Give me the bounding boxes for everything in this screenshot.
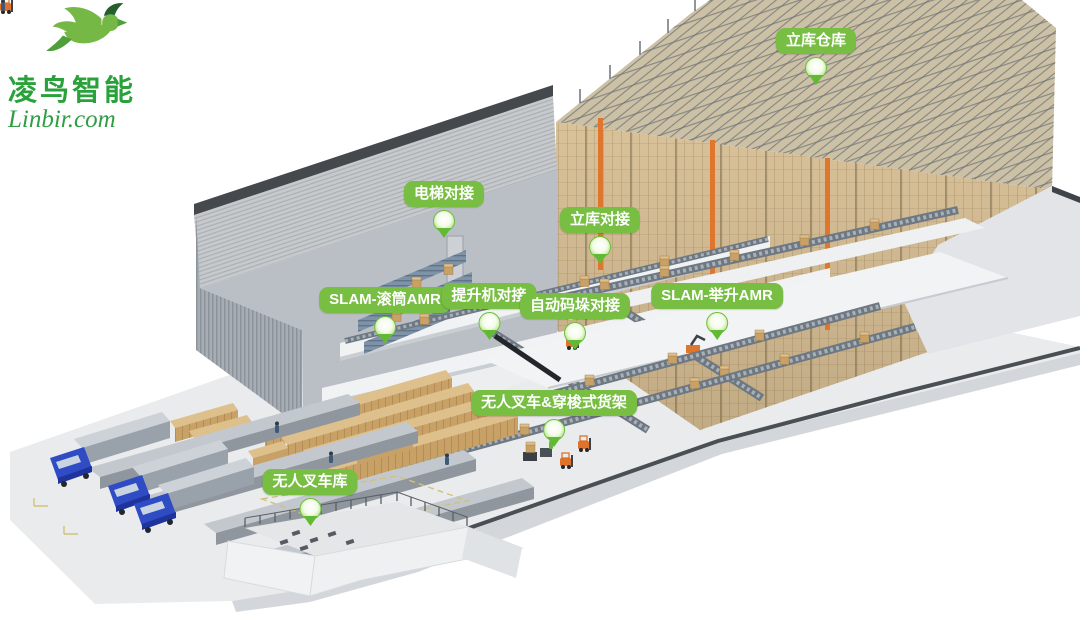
location-pin-icon (543, 419, 565, 447)
location-pin-icon (564, 322, 586, 350)
callout-asrs-warehouse: 立库仓库 (776, 28, 856, 85)
location-pin-icon (706, 312, 728, 340)
callout-label: 无人叉车&穿梭式货架 (471, 390, 637, 416)
callout-label: 无人叉车库 (262, 469, 357, 495)
brand-website: Linbir.com (8, 106, 188, 134)
callout-label: 立库仓库 (776, 28, 856, 54)
location-pin-icon (299, 498, 321, 526)
location-pin-icon (374, 316, 396, 344)
callout-unmanned-forklift-garage: 无人叉车库 (262, 469, 357, 526)
callout-label: SLAM-举升AMR (651, 283, 783, 309)
callout-asrs-docking: 立库对接 (560, 207, 640, 264)
callout-label: 电梯对接 (404, 181, 484, 207)
location-pin-icon (589, 236, 611, 264)
brand-logo: 凌鸟智能 Linbir.com (8, 2, 188, 134)
callout-label: 立库对接 (560, 207, 640, 233)
callout-slam-lift-amr: SLAM-举升AMR (651, 283, 783, 340)
callout-elevator-docking: 电梯对接 (404, 181, 484, 238)
warehouse-illustration: 凌鸟智能 Linbir.com 立库仓库 电梯对接 立库对接 SLAM-滚筒AM… (0, 0, 1080, 617)
location-pin-icon (805, 57, 827, 85)
callout-slam-roller-amr: SLAM-滚筒AMR (319, 287, 451, 344)
location-pin-icon (478, 312, 500, 340)
callout-unmanned-forklift-shuttle-rack: 无人叉车&穿梭式货架 (471, 390, 637, 447)
bird-logo-icon (22, 2, 172, 76)
location-pin-icon (433, 210, 455, 238)
brand-name: 凌鸟智能 (8, 76, 188, 106)
callout-label: 自动码垛对接 (520, 293, 630, 319)
callout-auto-palletizing-docking: 自动码垛对接 (520, 293, 630, 350)
callout-label: SLAM-滚筒AMR (319, 287, 451, 313)
